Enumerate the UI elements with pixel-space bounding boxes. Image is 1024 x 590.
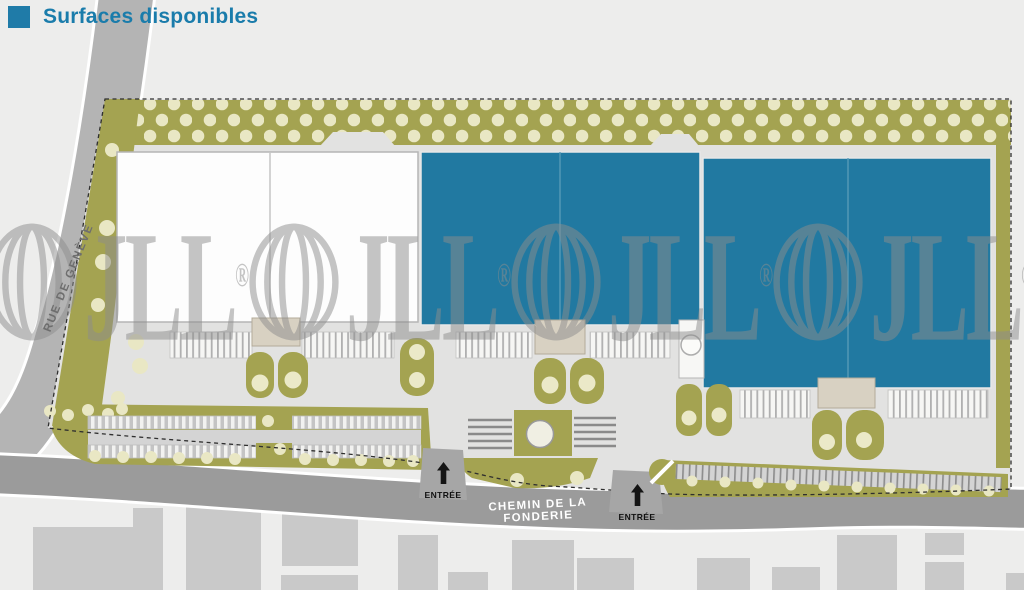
- green-band-east: [996, 142, 1010, 468]
- site-plan-svg: [0, 0, 1024, 590]
- building-not-available: [117, 152, 418, 322]
- entrance-arrow-icon: [631, 484, 644, 506]
- tree-strip-north: [105, 100, 1011, 145]
- building-available-2: [703, 158, 991, 388]
- sprinkler-tank: [679, 320, 704, 378]
- corner-planter: [649, 459, 675, 485]
- entrance-1: ENTRÉE: [421, 462, 465, 500]
- legend: Surfaces disponibles: [8, 5, 258, 29]
- legend-swatch: [8, 6, 30, 28]
- entrance-2-label: ENTRÉE: [615, 512, 659, 522]
- entrance-arrow-icon: [437, 462, 450, 484]
- legend-label: Surfaces disponibles: [43, 5, 258, 29]
- site-plan-image: JLL® JLL® JLL®: [0, 0, 1024, 590]
- entrance-2: ENTRÉE: [615, 484, 659, 522]
- entrance-1-label: ENTRÉE: [421, 490, 465, 500]
